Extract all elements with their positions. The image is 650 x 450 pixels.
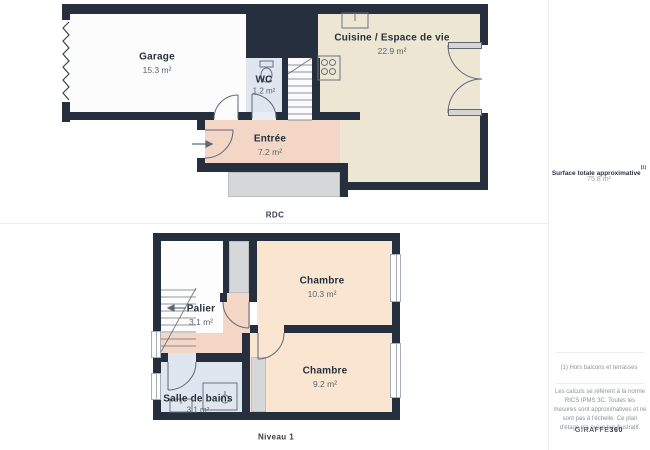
bathroom-door-opening bbox=[168, 353, 196, 362]
room-area-chambre-2: 9.2 m² bbox=[313, 379, 337, 389]
sidebar-rule bbox=[556, 383, 644, 384]
room-label-garage: Garage bbox=[139, 52, 175, 63]
wall bbox=[238, 112, 252, 120]
duct-niveau1 bbox=[251, 357, 266, 412]
garage-gate-band bbox=[61, 20, 71, 102]
closet-niveau1 bbox=[229, 241, 249, 293]
porch bbox=[228, 172, 340, 197]
wall bbox=[246, 4, 318, 58]
giraffe360-logo: GIRAFFE360 bbox=[550, 427, 648, 434]
surface-total-value: 75.8 m² bbox=[550, 176, 648, 183]
room-label-salle-de-bains: Salle de bains bbox=[163, 394, 233, 405]
room-label-wc: WC bbox=[255, 75, 272, 86]
wall bbox=[196, 353, 242, 362]
wall bbox=[480, 113, 488, 190]
surface-total-footnote-marker: (1) bbox=[641, 165, 647, 170]
sidebar-rule bbox=[556, 352, 644, 353]
staircase-rdc-floor bbox=[288, 58, 312, 120]
room-area-entree: 7.2 m² bbox=[258, 147, 282, 157]
wall bbox=[312, 112, 360, 120]
wall bbox=[250, 325, 258, 333]
brand-suffix: 360 bbox=[610, 427, 623, 434]
brand-name: GIRAFFE bbox=[575, 427, 610, 434]
wall bbox=[197, 163, 348, 172]
room-area-chambre-1: 10.3 m² bbox=[308, 289, 337, 299]
window bbox=[390, 343, 401, 398]
footnote-text: (1) Hors balcons et terrasses bbox=[550, 364, 648, 373]
room-garage bbox=[70, 14, 246, 112]
chambre-2-door-opening bbox=[258, 325, 284, 333]
french-door-leaf-top bbox=[448, 42, 482, 49]
sidebar-divider bbox=[548, 0, 549, 450]
room-label-entree: Entrée bbox=[254, 134, 286, 145]
room-area-garage: 15.3 m² bbox=[143, 65, 172, 75]
floor-caption-rdc: RDC bbox=[266, 211, 285, 220]
room-area-wc: 1.2 m² bbox=[253, 87, 276, 96]
wall bbox=[480, 4, 488, 45]
room-area-salle-de-bains: 3.1 m² bbox=[187, 406, 210, 415]
window bbox=[151, 373, 161, 400]
wall bbox=[340, 163, 348, 197]
room-label-cuisine: Cuisine / Espace de vie bbox=[334, 33, 449, 44]
window bbox=[390, 254, 401, 302]
room-label-chambre-1: Chambre bbox=[300, 276, 345, 287]
garage-door-opening bbox=[214, 112, 238, 120]
floor-separator-line bbox=[0, 223, 548, 224]
wall bbox=[282, 58, 288, 120]
wc-door-opening bbox=[252, 112, 276, 120]
chambre-1-door-opening bbox=[227, 293, 249, 302]
room-area-cuisine: 22.9 m² bbox=[378, 46, 407, 56]
wall bbox=[153, 233, 400, 241]
wall bbox=[242, 333, 250, 420]
wall bbox=[312, 58, 320, 120]
french-door-leaf-bottom bbox=[448, 109, 482, 116]
front-door-opening bbox=[197, 130, 205, 158]
room-label-palier: Palier bbox=[187, 304, 215, 315]
room-label-chambre-2: Chambre bbox=[303, 366, 348, 377]
wall bbox=[220, 293, 227, 302]
window bbox=[151, 331, 161, 358]
wall bbox=[284, 325, 398, 333]
wall bbox=[249, 241, 257, 302]
room-area-palier: 3.1 m² bbox=[189, 317, 213, 327]
wall bbox=[340, 182, 488, 190]
wall bbox=[223, 241, 229, 293]
wall bbox=[161, 353, 168, 362]
french-door-opening bbox=[480, 45, 488, 113]
wall bbox=[62, 112, 214, 120]
floorplan-page: Garage 15.3 m² WC 1.2 m² Cuisine / Espac… bbox=[0, 0, 650, 450]
floor-caption-niveau1: Niveau 1 bbox=[258, 433, 294, 442]
wall bbox=[197, 120, 205, 130]
